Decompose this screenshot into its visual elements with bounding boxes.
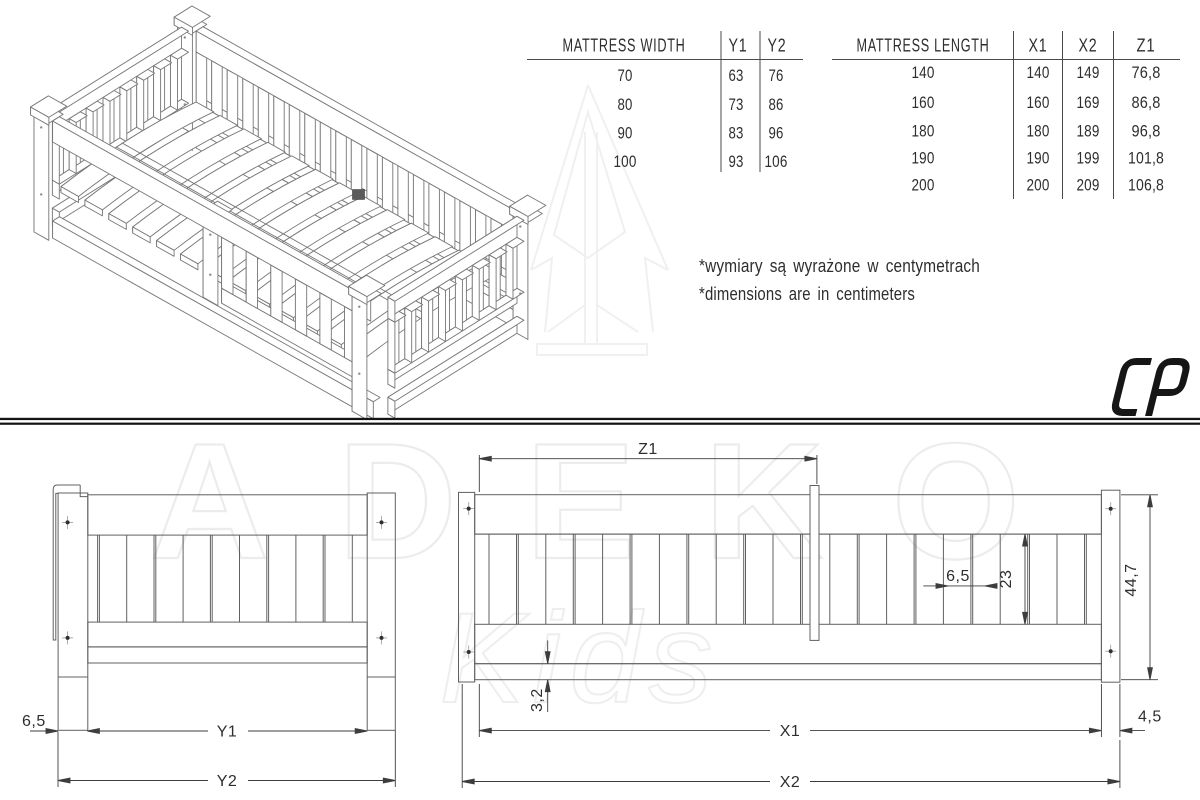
svg-text:180: 180 xyxy=(912,122,935,141)
svg-text:Z1: Z1 xyxy=(1137,36,1156,56)
svg-text:76: 76 xyxy=(769,66,784,85)
svg-text:101,8: 101,8 xyxy=(1128,149,1164,168)
svg-text:106: 106 xyxy=(765,152,788,171)
svg-text:Y2: Y2 xyxy=(768,36,787,56)
svg-text:100: 100 xyxy=(614,152,637,171)
svg-text:70: 70 xyxy=(618,66,633,85)
svg-text:Kids: Kids xyxy=(440,587,721,730)
svg-text:MATTRESS LENGTH: MATTRESS LENGTH xyxy=(857,36,990,56)
svg-text:4,5: 4,5 xyxy=(1138,709,1162,726)
svg-text:Y2: Y2 xyxy=(217,773,238,790)
svg-text:180: 180 xyxy=(1027,122,1050,141)
svg-text:73: 73 xyxy=(729,95,744,114)
svg-text:Y1: Y1 xyxy=(729,36,748,56)
svg-text:140: 140 xyxy=(1027,63,1050,82)
svg-text:MATTRESS WIDTH: MATTRESS WIDTH xyxy=(563,36,686,56)
svg-text:199: 199 xyxy=(1077,149,1100,168)
svg-text:6,5: 6,5 xyxy=(946,568,970,585)
svg-text:86: 86 xyxy=(769,95,784,114)
svg-text:X2: X2 xyxy=(780,774,801,791)
svg-text:189: 189 xyxy=(1077,122,1100,141)
svg-text:Z1: Z1 xyxy=(638,441,658,458)
svg-text:3,2: 3,2 xyxy=(529,688,546,712)
svg-text:*dimensions are in centimeters: *dimensions are in centimeters xyxy=(699,284,915,304)
svg-text:169: 169 xyxy=(1077,93,1100,112)
svg-text:160: 160 xyxy=(1027,93,1050,112)
svg-text:6,5: 6,5 xyxy=(22,713,46,730)
svg-text:190: 190 xyxy=(912,149,935,168)
svg-text:ADEKO: ADEKO xyxy=(150,409,1050,593)
svg-text:140: 140 xyxy=(912,63,935,82)
svg-text:80: 80 xyxy=(618,95,633,114)
svg-text:X2: X2 xyxy=(1079,36,1098,56)
svg-text:149: 149 xyxy=(1077,63,1100,82)
svg-text:X1: X1 xyxy=(1029,36,1048,56)
svg-text:X1: X1 xyxy=(780,723,801,740)
svg-text:*wymiary są wyrażone w centyme: *wymiary są wyrażone w centymetrach xyxy=(699,256,980,276)
svg-text:209: 209 xyxy=(1077,176,1100,195)
svg-text:106,8: 106,8 xyxy=(1128,176,1164,195)
svg-text:Y1: Y1 xyxy=(217,724,238,741)
svg-text:200: 200 xyxy=(1027,176,1050,195)
svg-text:23: 23 xyxy=(998,570,1015,589)
svg-text:160: 160 xyxy=(912,93,935,112)
svg-text:86,8: 86,8 xyxy=(1132,93,1161,112)
svg-text:76,8: 76,8 xyxy=(1132,63,1161,82)
svg-text:190: 190 xyxy=(1027,149,1050,168)
svg-text:44,7: 44,7 xyxy=(1123,563,1140,596)
svg-text:200: 200 xyxy=(912,176,935,195)
svg-text:96: 96 xyxy=(769,124,784,143)
svg-text:83: 83 xyxy=(729,124,744,143)
svg-text:90: 90 xyxy=(618,124,633,143)
svg-text:63: 63 xyxy=(729,66,744,85)
svg-text:93: 93 xyxy=(729,152,744,171)
svg-text:96,8: 96,8 xyxy=(1132,122,1161,141)
